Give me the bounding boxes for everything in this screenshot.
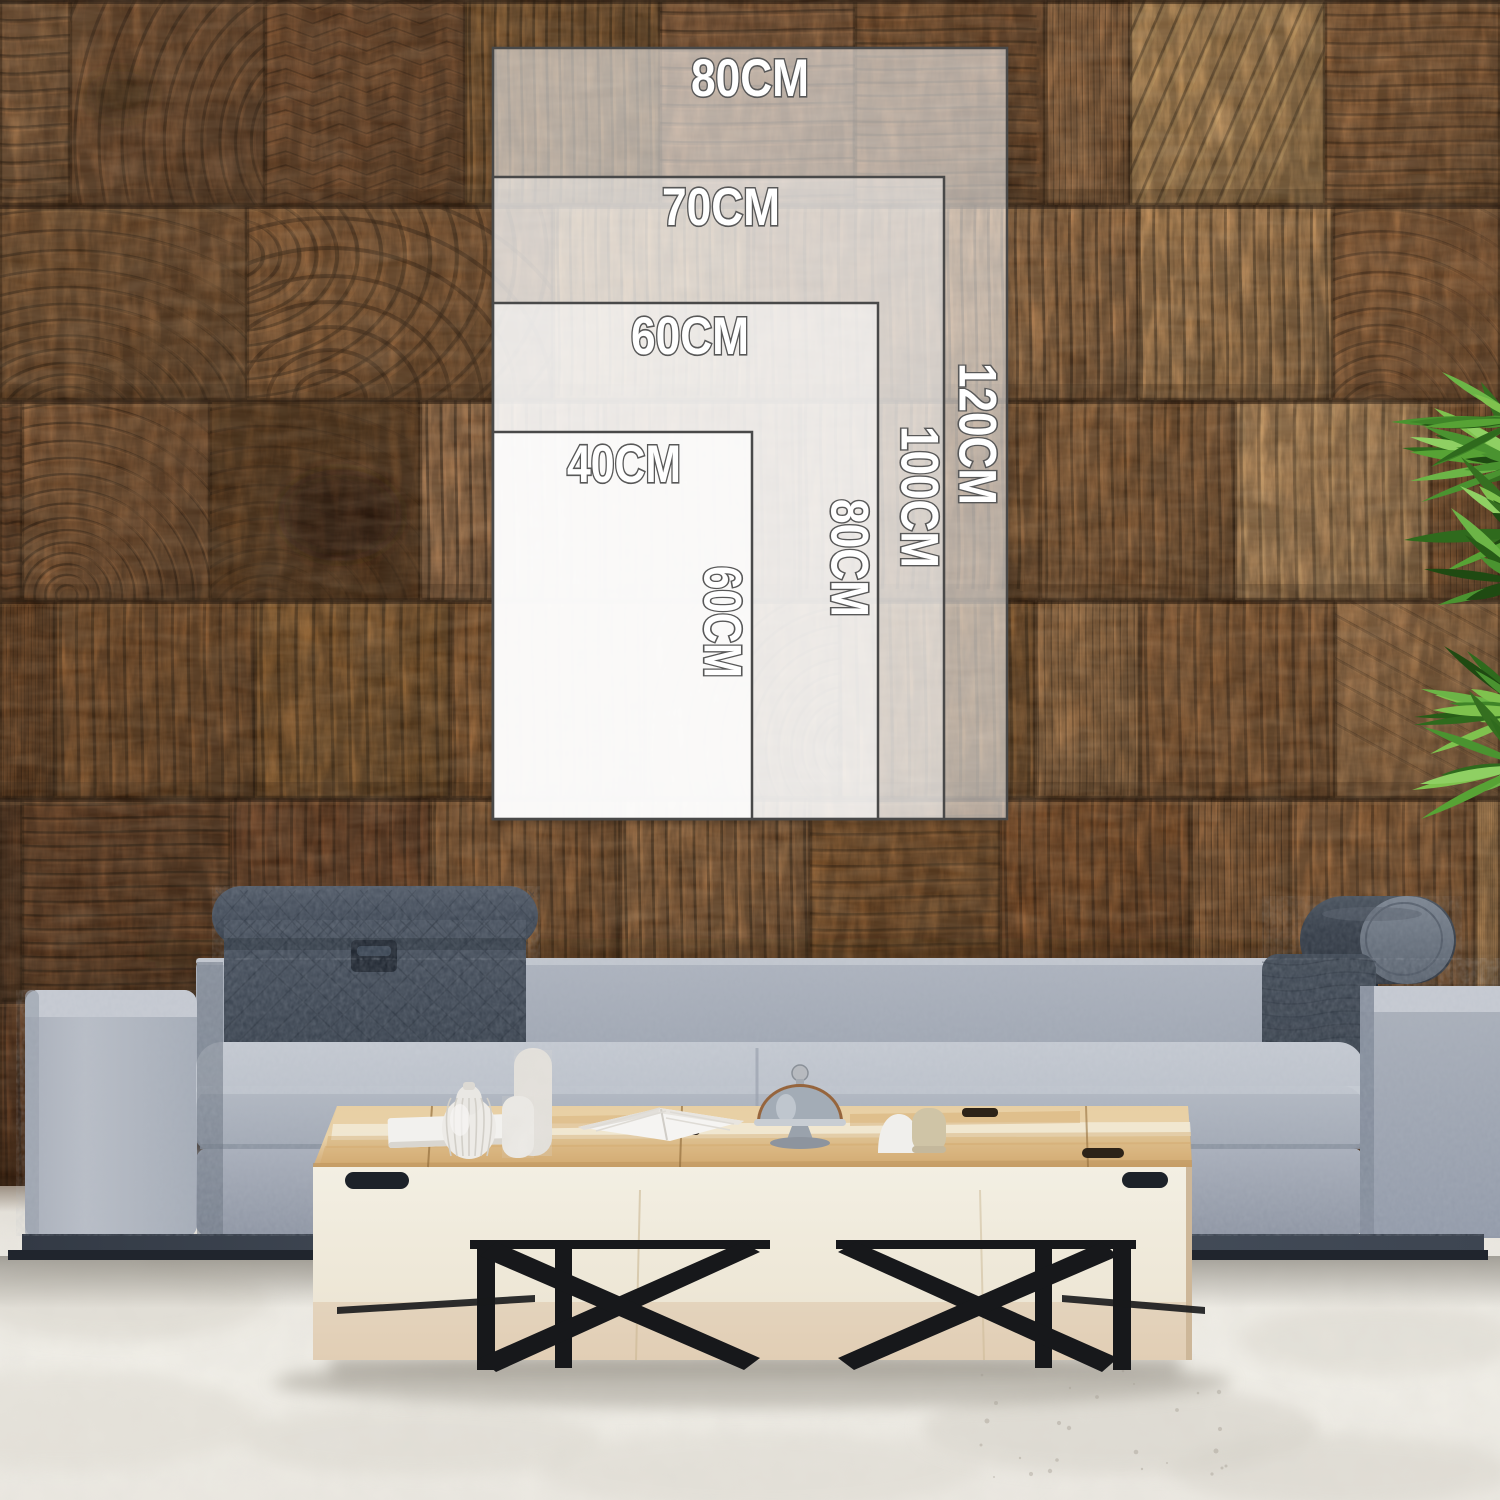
svg-text:60CM: 60CM xyxy=(631,307,749,366)
svg-text:120CM: 120CM xyxy=(948,363,1007,505)
svg-text:70CM: 70CM xyxy=(662,178,780,237)
svg-text:60CM: 60CM xyxy=(693,566,752,678)
svg-text:80CM: 80CM xyxy=(691,49,809,108)
svg-text:40CM: 40CM xyxy=(567,435,681,494)
svg-text:100CM: 100CM xyxy=(890,426,949,568)
svg-text:80CM: 80CM xyxy=(820,499,879,617)
